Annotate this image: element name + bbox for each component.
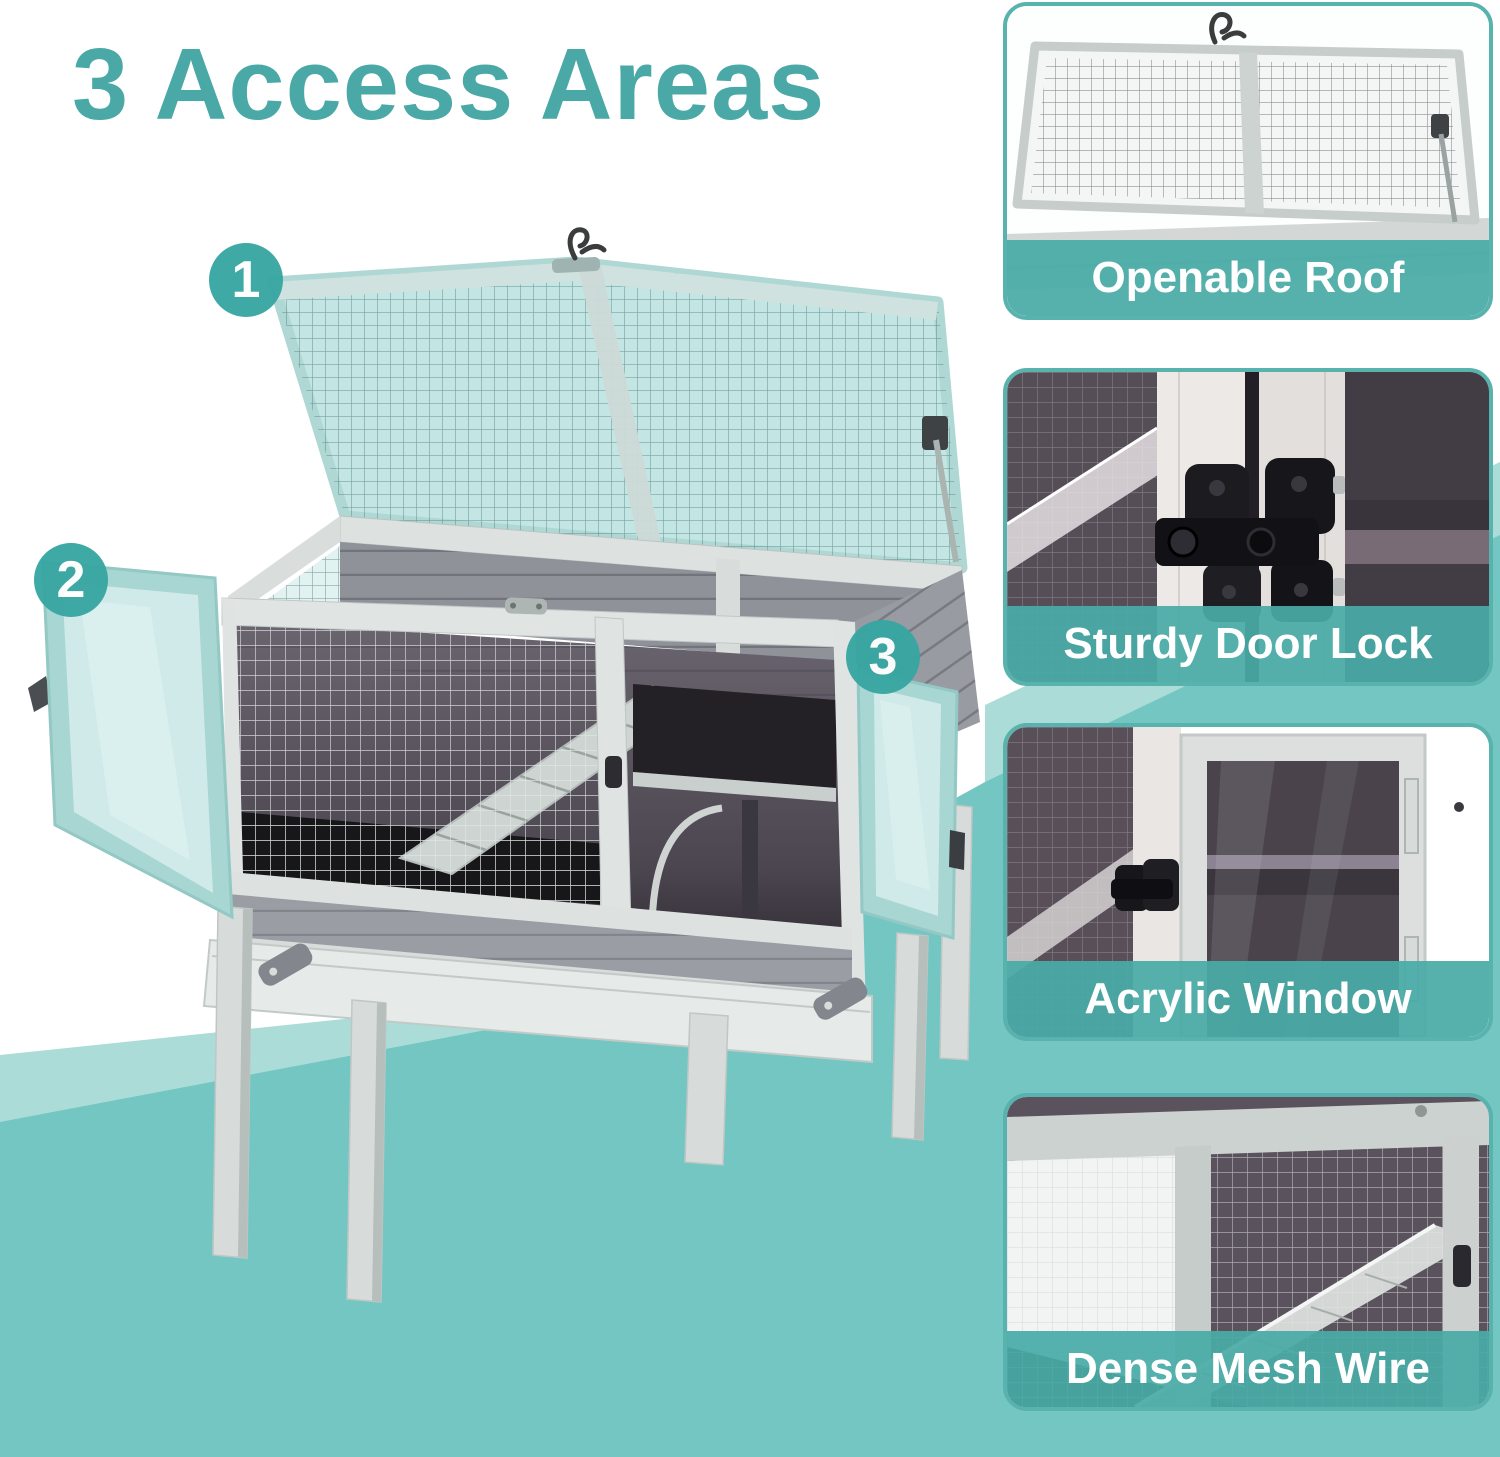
hutch-body: [28, 516, 980, 1302]
lid-hook: [552, 230, 604, 273]
product-infographic: 3 Access Areas: [0, 0, 1500, 1457]
hinge-latch: [1111, 859, 1179, 911]
feature-card-acrylic-window: Acrylic Window: [1003, 723, 1493, 1041]
callout-badge-right-door: 3: [846, 620, 920, 694]
badge-number: 1: [232, 250, 261, 310]
door-hinge-top: [1405, 779, 1418, 853]
feature-card-sturdy-door-lock: Sturdy Door Lock: [1003, 368, 1493, 686]
front-mesh-panel: [228, 622, 606, 906]
post-latch: [1453, 1245, 1471, 1287]
right-door-latch: [949, 830, 965, 870]
feature-card-openable-roof: Openable Roof: [1003, 2, 1493, 320]
feature-caption-dense-mesh-wire: Dense Mesh Wire: [1007, 1331, 1489, 1407]
leg-mid-right: [685, 1013, 728, 1165]
screw-dot: [1454, 802, 1464, 812]
right-door-open: [858, 670, 965, 938]
openable-roof-lid: [273, 230, 962, 568]
left-door-open: [28, 562, 232, 917]
front-rail-latch: [505, 597, 548, 614]
callout-badge-left-door: 2: [34, 543, 108, 617]
feature-card-dense-mesh-wire: Dense Mesh Wire: [1003, 1093, 1493, 1411]
feature-caption-sturdy-door-lock: Sturdy Door Lock: [1007, 606, 1489, 682]
badge-number: 3: [869, 627, 898, 687]
badge-number: 2: [57, 550, 86, 610]
mesh-lid: [1017, 46, 1475, 220]
feature-caption-openable-roof: Openable Roof: [1007, 240, 1489, 316]
callout-badge-roof: 1: [209, 243, 283, 317]
hinge-dot: [1415, 1105, 1427, 1117]
feature-caption-acrylic-window: Acrylic Window: [1007, 961, 1489, 1037]
center-post-latch: [605, 756, 622, 788]
